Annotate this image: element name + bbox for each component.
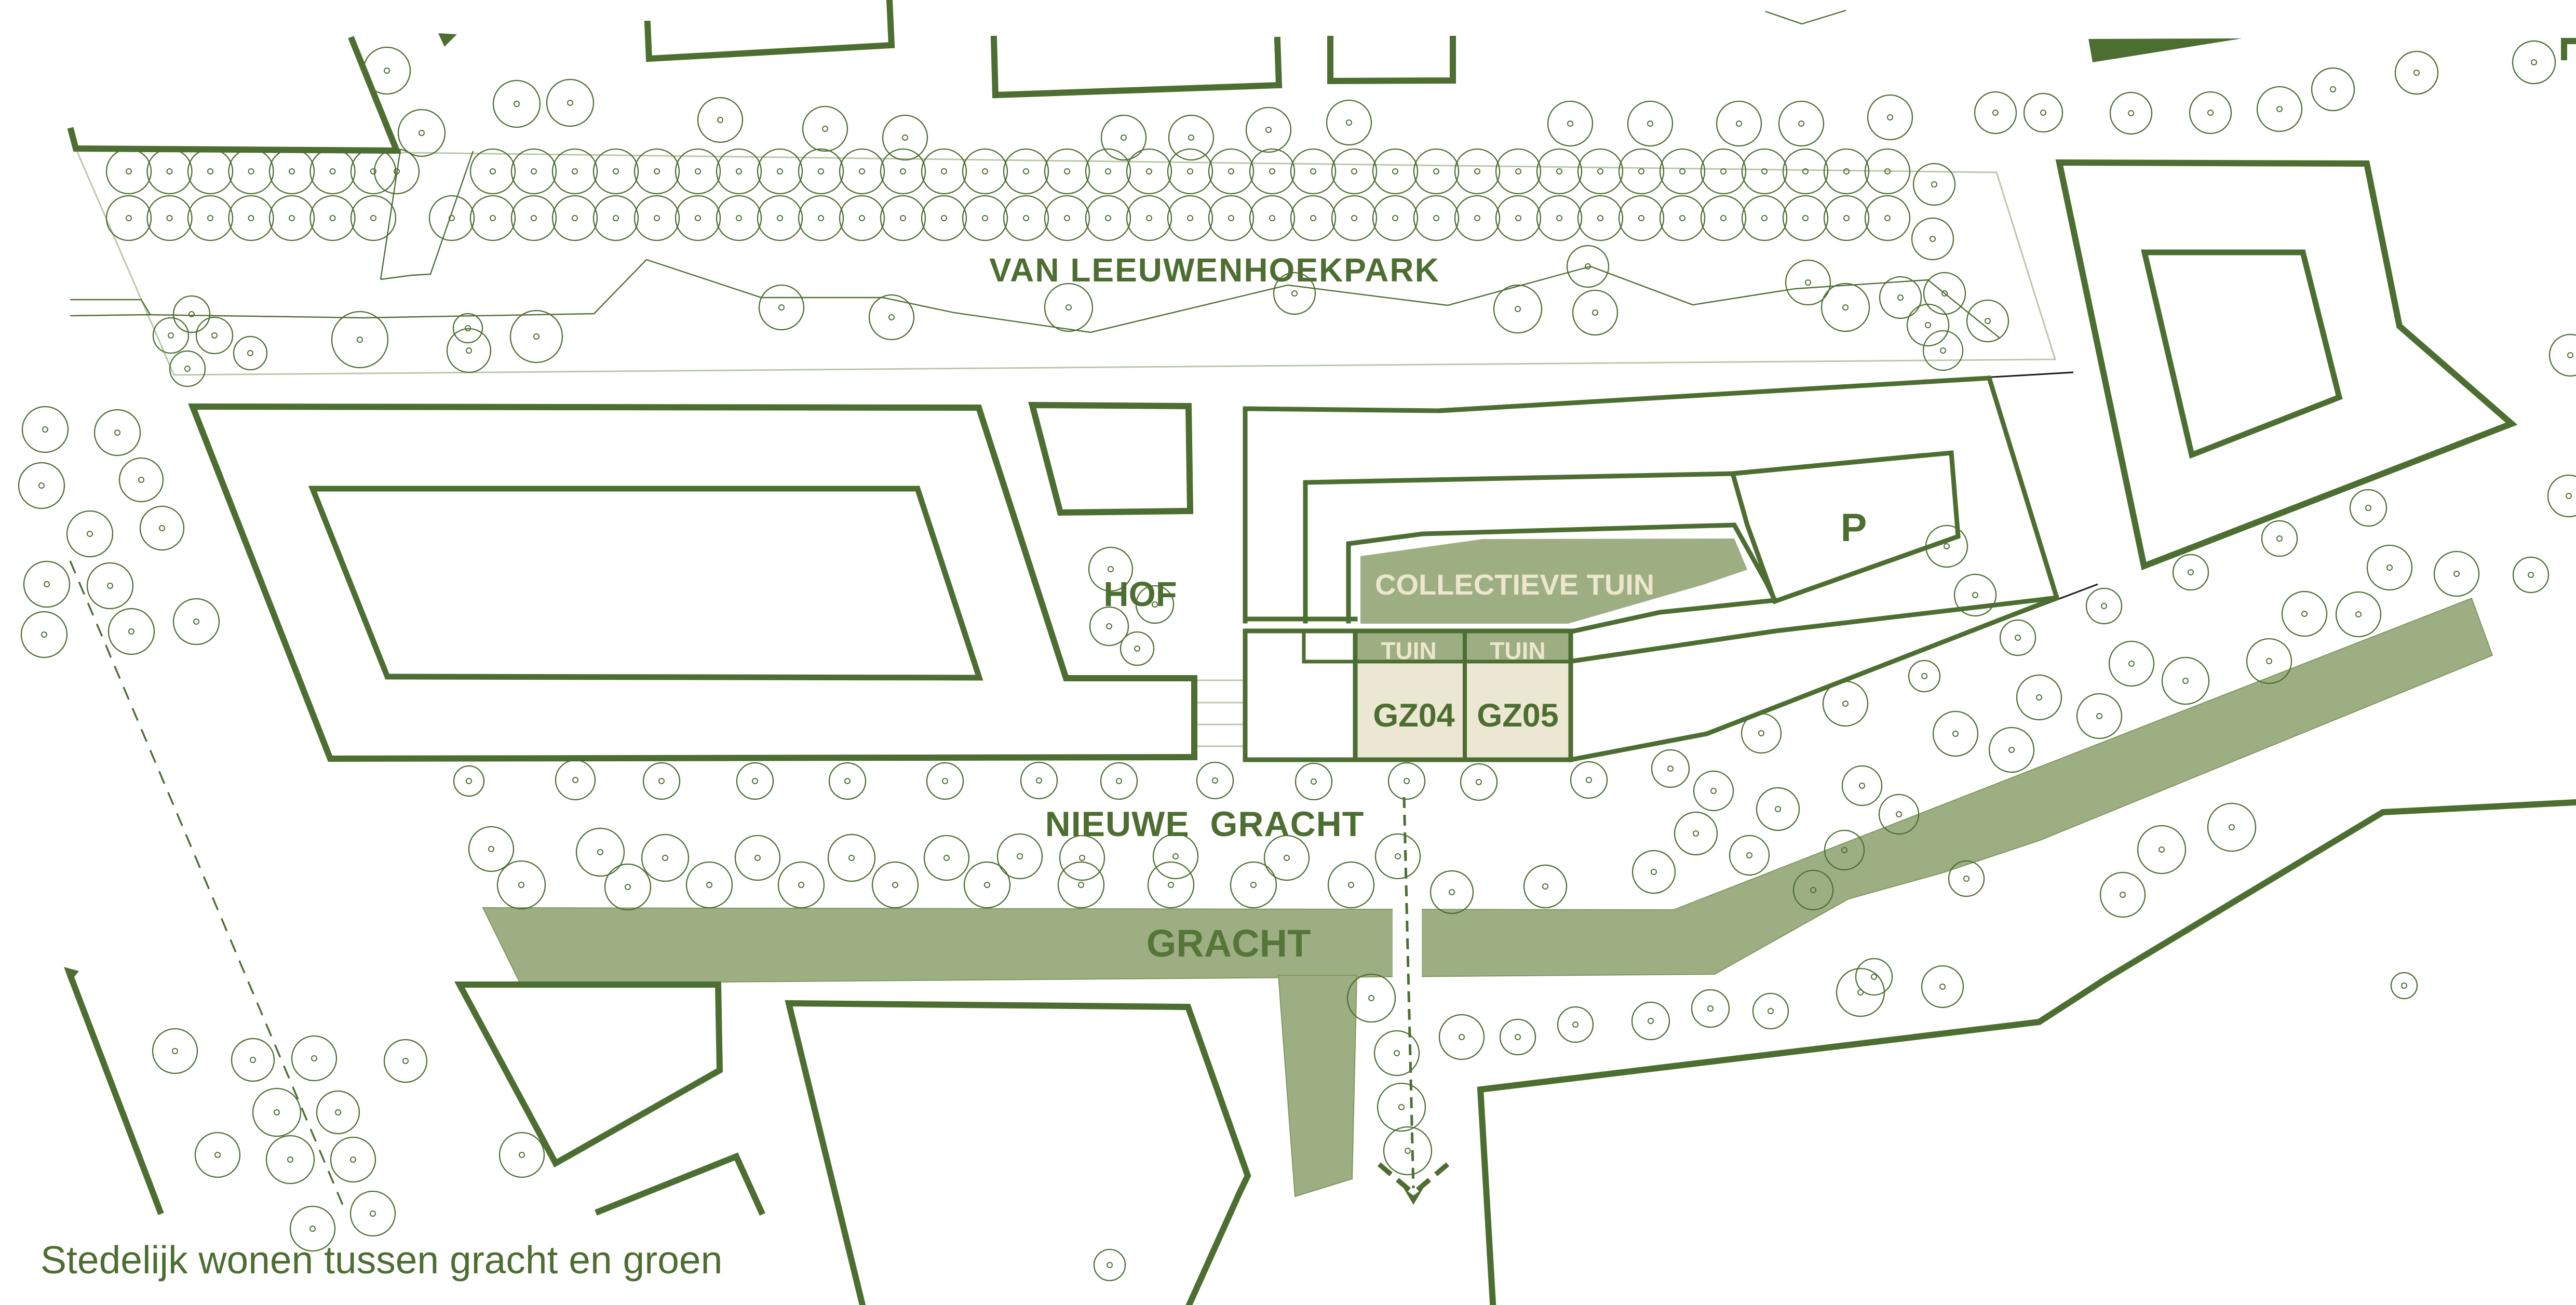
svg-text:COLLECTIEVE TUIN: COLLECTIEVE TUIN bbox=[1375, 568, 1654, 601]
svg-text:TUIN: TUIN bbox=[1490, 637, 1545, 664]
svg-text:GZ05: GZ05 bbox=[1477, 697, 1559, 734]
svg-text:GZ04: GZ04 bbox=[1373, 697, 1455, 734]
svg-text:NIEUWE GRACHT: NIEUWE GRACHT bbox=[1045, 804, 1365, 844]
svg-text:HOF: HOF bbox=[1103, 575, 1177, 614]
svg-text:TUIN: TUIN bbox=[1381, 637, 1436, 664]
svg-text:GRACHT: GRACHT bbox=[1147, 922, 1311, 965]
svg-text:Stedelijk wonen tussen gracht: Stedelijk wonen tussen gracht en groen bbox=[41, 1238, 722, 1282]
svg-text:P: P bbox=[1841, 506, 1867, 550]
svg-text:VAN LEEUWENHOEKPARK: VAN LEEUWENHOEKPARK bbox=[989, 251, 1440, 289]
